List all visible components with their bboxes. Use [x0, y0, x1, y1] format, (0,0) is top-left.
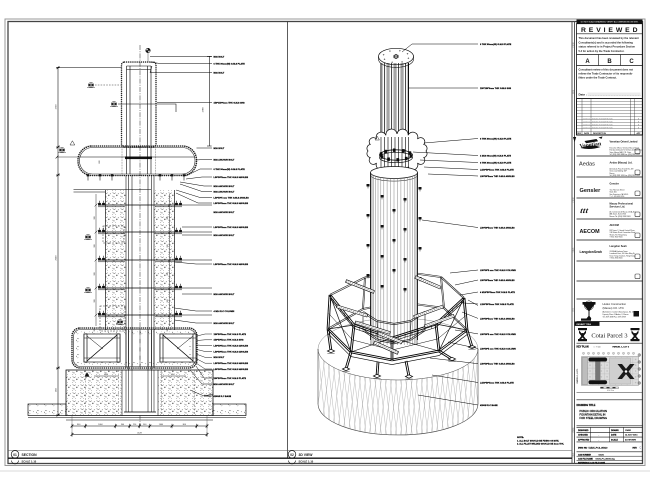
svg-text:L50*50*5mm THK G.M.S ANGLES: L50*50*5mm THK G.M.S ANGLES: [214, 263, 249, 266]
svg-text:(Macau) CO. LTD.: (Macau) CO. LTD.: [603, 306, 625, 310]
svg-text:M16 ANCHOR BOLT: M16 ANCHOR BOLT: [214, 234, 235, 237]
svg-text:NOTE:: NOTE:: [517, 437, 524, 439]
svg-text:M16 BOLT: M16 BOLT: [214, 357, 225, 359]
svg-text:CHECKED: CHECKED: [578, 435, 588, 437]
svg-text:A: A: [585, 59, 590, 65]
svg-text:C: C: [640, 447, 642, 450]
svg-text:05010: 05010: [573, 428, 575, 433]
svg-text:Tel: (853) 2882 8888 Fax: (85: Tel: (853) 2882 8888 Fax: (853) 2882 888…: [610, 154, 640, 156]
svg-text:Consultant review of this: Consultant review of this document does …: [579, 68, 634, 72]
svg-text:1664: 1664: [159, 424, 163, 426]
svg-text:Macau Tel: (853) 2838 9303: Macau Tel: (853) 2838 9303: [610, 216, 631, 218]
svg-text:Venetian Orient Limited: Venetian Orient Limited: [610, 141, 638, 144]
svg-text:DESIGNED: DESIGNED: [578, 430, 589, 432]
svg-text:AS SHOWN: AS SHOWN: [625, 439, 636, 442]
svg-text:1700: 1700: [56, 104, 58, 110]
svg-text:M16 BOLT: M16 BOLT: [214, 148, 225, 150]
svg-text:6 THK 90mm(W) G.M.S PLATE: 6 THK 90mm(W) G.M.S PLATE: [214, 168, 246, 171]
svg-text:PROJECT TITLE: PROJECT TITLE: [577, 324, 592, 326]
svg-text:150*50*5mm THK G.M.S PLATE: 150*50*5mm THK G.M.S PLATE: [214, 333, 247, 336]
svg-text:300: 300: [94, 328, 96, 331]
svg-text:Langdon Seah: Langdon Seah: [610, 245, 628, 248]
svg-text:M16 ANCHOR BOLT: M16 ANCHOR BOLT: [214, 158, 235, 161]
svg-text:ISSUED FOR APPROVAL: ISSUED FOR APPROVAL: [592, 123, 613, 126]
svg-text:Tel: (853) 2833 1055 Fax: (85: Tel: (853) 2833 1055 Fax: (853) 2833 086…: [610, 175, 640, 177]
svg-text:T: 852 3922 9000: T: 852 3922 9000: [610, 237, 623, 239]
svg-text:REFERENCE CAD FILE NAME: REFERENCE CAD FILE NAME: [578, 461, 606, 464]
svg-text:L150*50*5mm THK G.M.S PLATE: L150*50*5mm THK G.M.S PLATE: [480, 381, 514, 384]
svg-text:L50*50*5 mm THK G.M.S COLUMN: L50*50*5 mm THK G.M.S COLUMN: [480, 334, 516, 336]
svg-text:REV: REV: [633, 448, 638, 450]
svg-text:Cotai Parcel 3: Cotai Parcel 3: [591, 333, 627, 340]
svg-text:300: 300: [143, 424, 146, 426]
svg-text:4 M16 90mm(W) G.M.S PLATE: 4 M16 90mm(W) G.M.S PLATE: [480, 154, 511, 157]
svg-text:ISSUED FOR APPROVAL: ISSUED FOR APPROVAL: [592, 120, 613, 123]
svg-text:SECTION: SECTION: [22, 453, 38, 457]
svg-text:PUBLIC CIRCULATION: PUBLIC CIRCULATION: [580, 409, 608, 413]
svg-text:L50*50*5mm THK G.M.S ANGLES: L50*50*5mm THK G.M.S ANGLES: [214, 226, 249, 229]
svg-text:FOR STEEL DRAWING: FOR STEEL DRAWING: [580, 416, 607, 420]
svg-text:150*150*6mm THK G.M.S SHS: 150*150*6mm THK G.M.S SHS: [214, 102, 246, 104]
svg-text:300: 300: [167, 216, 169, 219]
svg-text:ISSUED FOR APPROVAL: ISSUED FOR APPROVAL: [592, 126, 613, 129]
svg-text:M16 ANCHOR BOLT: M16 ANCHOR BOLT: [214, 190, 235, 193]
svg-text:51525: 51525: [573, 248, 575, 253]
svg-text:3D VIEW: 3D VIEW: [299, 453, 314, 457]
svg-text:M16 ANCHOR BOLT: M16 ANCHOR BOLT: [214, 293, 235, 296]
svg-text:14 JULY 2015: 14 JULY 2015: [625, 435, 638, 437]
svg-text:3 1612: 3 1612: [573, 197, 575, 202]
svg-text:1788: 1788: [203, 107, 205, 113]
svg-text:T + 1 415 433 3700: T + 1 415 433 3700: [610, 196, 625, 198]
svg-text:Gensler: Gensler: [580, 188, 602, 194]
svg-text:800: 800: [183, 424, 186, 426]
svg-text:05/06/15: 05/06/15: [583, 121, 590, 123]
svg-text:FOUNTAIN DETAIL IN: FOUNTAIN DETAIL IN: [580, 413, 606, 417]
svg-text:ISSUED FOR APPROVAL: ISSUED FOR APPROVAL: [592, 117, 613, 120]
svg-text:2. ALL FILLET WELDED SHOULD B: 2. ALL FILLET WELDED SHOULD BE 3mm THK.: [517, 443, 565, 446]
svg-text:L50*50*5mm THK G.M.S ANGLES: L50*50*5mm THK G.M.S ANGLES: [214, 362, 249, 365]
svg-text:800: 800: [77, 424, 80, 426]
svg-text:PARCEL 1, LOT 1: PARCEL 1, LOT 1: [576, 369, 579, 384]
svg-text:M16 ANCHOR BOLT: M16 ANCHOR BOLT: [214, 322, 235, 325]
svg-text:Aedas (Macau) Ltd.: Aedas (Macau) Ltd.: [610, 162, 633, 165]
svg-text:SCALE 1:10: SCALE 1:10: [299, 459, 314, 463]
svg-text:6 THK 90mm(W) G.M.S PLATE: 6 THK 90mm(W) G.M.S PLATE: [480, 161, 512, 164]
svg-text:M16 ANCHOR BOLT: M16 ANCHOR BOLT: [214, 383, 235, 386]
svg-text:150*50*5mm THK G.M.S SHS: 150*50*5mm THK G.M.S SHS: [214, 340, 244, 342]
svg-text:PARCEL 1, LOT 2: PARCEL 1, LOT 2: [613, 346, 630, 349]
svg-text:B: B: [607, 59, 612, 65]
svg-text:CAD NUMBER: CAD NUMBER: [578, 453, 592, 456]
svg-text:1:150: 1:150: [573, 90, 575, 94]
svg-text:status referred to in Proj: status referred to in Project Procedure …: [579, 45, 636, 49]
svg-text:5.4 for action by the Tra: 5.4 for action by the Trade Contractor.: [579, 49, 625, 53]
svg-text:Tel: 2875 3838 Fax: 2875 393: Tel: 2875 3838 Fax: 2875 3939: [603, 316, 626, 318]
svg-text:0 10 20 m: 0 10 20 m: [607, 390, 615, 392]
svg-text:LangdonSeah: LangdonSeah: [580, 250, 602, 254]
svg-text:M16 BOLT: M16 BOLT: [214, 56, 225, 58]
svg-text:4200Ø R.C BASE: 4200Ø R.C BASE: [214, 395, 232, 398]
svg-text:Gensler: Gensler: [610, 183, 619, 186]
svg-text:6 THK 90mm(W) G.M.S PLATE: 6 THK 90mm(W) G.M.S PLATE: [480, 137, 512, 140]
svg-text:DRAWING TITLE: DRAWING TITLE: [577, 404, 596, 407]
svg-text:1. ALL BOLT SHOULD BE FIXING: 1. ALL BOLT SHOULD BE FIXING ON SITE.: [517, 439, 560, 442]
svg-text:300: 300: [94, 244, 96, 247]
svg-text:AECOM: AECOM: [610, 224, 619, 227]
svg-text:300: 300: [167, 272, 169, 275]
svg-text:4200Ø R.C BASE: 4200Ø R.C BASE: [480, 404, 498, 407]
svg-text:6 THK 90mm(W) G.M.S PLATE: 6 THK 90mm(W) G.M.S PLATE: [214, 62, 246, 65]
svg-text:L50*50*5mm THK G.M.S ANGLES: L50*50*5mm THK G.M.S ANGLES: [214, 350, 249, 353]
svg-text:2690: 2690: [56, 255, 58, 261]
svg-text:M16 BOLT: M16 BOLT: [214, 72, 225, 74]
svg-text:300: 300: [121, 424, 124, 426]
svg-text:L50*50*5mm THK G.M.S ANGLES: L50*50*5mm THK G.M.S ANGLES: [480, 363, 515, 366]
svg-text:L50*50*5mm THK G.M.S ANGLES: L50*50*5mm THK G.M.S ANGLES: [214, 176, 249, 179]
svg-text:KEY PLAN: KEY PLAN: [577, 346, 589, 349]
svg-text:PC3: PC3: [573, 308, 575, 311]
svg-text:L150*50*5mm THK G.M.S PLATE: L150*50*5mm THK G.M.S PLATE: [480, 168, 514, 171]
svg-text:relieve the Trade Contracto: relieve the Trade Contractor of its resp…: [579, 72, 633, 76]
svg-text:250: 250: [133, 424, 136, 426]
svg-text:ilities under the Trade Co: ilities under the Trade Contract.: [579, 76, 618, 80]
svg-text:300: 300: [167, 299, 169, 302]
svg-text:AECOM: AECOM: [580, 229, 601, 235]
svg-text:01: 01: [13, 453, 17, 457]
svg-text:DWG NO: DWG NO: [578, 448, 588, 450]
svg-text:L50*50*5mm THK G.M.S ANGLES: L50*50*5mm THK G.M.S ANGLES: [480, 279, 515, 282]
svg-text:4 M16*50*5mm THK G.M.S PLATE: 4 M16*50*5mm THK G.M.S PLATE: [480, 291, 515, 294]
svg-text:L50*50*5mm THK G.M.S ANGLES: L50*50*5mm THK G.M.S ANGLES: [214, 368, 249, 371]
svg-text:Consultants(s) and is accor: Consultants(s) and is accorded the follo…: [579, 40, 634, 44]
svg-text:1664: 1664: [98, 424, 102, 426]
svg-text:300: 300: [167, 328, 169, 331]
svg-text:CWKD: CWKD: [625, 430, 632, 432]
svg-text:DATE: DATE: [611, 434, 617, 437]
svg-text:L50*50*5mm THK G.M.S ANGLES: L50*50*5mm THK G.M.S ANGLES: [480, 175, 515, 178]
svg-text:300: 300: [94, 216, 96, 219]
svg-text:China Law Building 16/F: China Law Building 16/F: [610, 171, 627, 173]
svg-text:L50*50*5 mm THK G.M.S ANGLES: L50*50*5 mm THK G.M.S ANGLES: [214, 196, 250, 199]
svg-text:L50*50*5mm THK G.M.S ANGLES: L50*50*5mm THK G.M.S ANGLES: [480, 226, 515, 229]
svg-text:Services Ltd.: Services Ltd.: [610, 206, 626, 209]
svg-text:C: C: [629, 59, 634, 65]
svg-text:DRAWN: DRAWN: [611, 429, 619, 432]
svg-text:SCALE: SCALE: [611, 439, 618, 442]
svg-text:150*150*6mm THK G.M.S SHS: 150*150*6mm THK G.M.S SHS: [480, 88, 512, 90]
svg-text:51525_PC3_05010: 51525_PC3_05010: [589, 448, 609, 450]
svg-text:Hudec Construction: Hudec Construction: [603, 302, 627, 306]
svg-text:L150*50*5mm THK G.M.S PLATE: L150*50*5mm THK G.M.S PLATE: [480, 303, 514, 306]
svg-text:SCALE 1:10: SCALE 1:10: [22, 459, 37, 463]
svg-text:51525: 51525: [573, 453, 575, 458]
svg-text:300: 300: [94, 272, 96, 275]
svg-text:L50*50*5mm THK G.M.S ANGLES: L50*50*5mm THK G.M.S ANGLES: [480, 317, 515, 320]
svg-text:05/06/15: 05/06/15: [583, 124, 590, 126]
svg-text:M16 ANCHOR BOLT: M16 ANCHOR BOLT: [214, 211, 235, 214]
svg-text:05/06/15: 05/06/15: [583, 127, 590, 129]
svg-text:864: 864: [104, 374, 107, 376]
svg-text:6 THK 90mm(W) G.M.S PLATE: 6 THK 90mm(W) G.M.S PLATE: [480, 43, 512, 46]
svg-text:L50*50*5 mm THK G.M.S COLUMN: L50*50*5 mm THK G.M.S COLUMN: [480, 348, 516, 350]
svg-text:300: 300: [94, 299, 96, 302]
svg-text:R E V I E W E D: R E V I E W E D: [581, 27, 638, 34]
svg-text:L50*50*5mm THK G.M.S ANGLES: L50*50*5mm THK G.M.S ANGLES: [214, 202, 249, 205]
svg-text:This document has been reviewe: This document has been reviewed by the r…: [579, 36, 639, 40]
svg-text:300: 300: [167, 244, 169, 247]
svg-text:Aedas: Aedas: [579, 162, 595, 168]
svg-text:L50*50*5mm THK G.M.S ANGLES: L50*50*5mm THK G.M.S ANGLES: [214, 345, 249, 348]
svg-text:02: 02: [290, 453, 294, 457]
svg-text:1 : 7 500: 1 : 7 500: [594, 347, 601, 349]
svg-text:150*50*5mm THK G.M.S PLATE: 150*50*5mm THK G.M.S PLATE: [214, 377, 247, 380]
svg-text:3 1612: 3 1612: [573, 42, 575, 47]
svg-text:Macau: Macau: [610, 173, 615, 175]
svg-text:864: 864: [171, 374, 174, 376]
svg-text:4 M16 R.C COLUMN: 4 M16 R.C COLUMN: [214, 310, 235, 313]
svg-text:Date :: Date :: [579, 93, 587, 97]
svg-text:T: 852 2830 3500: T: 852 2830 3500: [610, 258, 623, 260]
svg-text:05/06/15: 05/06/15: [583, 118, 590, 120]
svg-text:APPROVED: APPROVED: [578, 439, 590, 442]
svg-text:L50*50*5 mm THK G.M.S COLUMN: L50*50*5 mm THK G.M.S COLUMN: [480, 270, 516, 272]
svg-text:DO NOT SCALE DRAWINGS. VERIFY: DO NOT SCALE DRAWINGS. VERIFY ALL DIMENS…: [581, 21, 639, 24]
svg-text:M16 ANCHOR BOLT: M16 ANCHOR BOLT: [214, 185, 235, 188]
